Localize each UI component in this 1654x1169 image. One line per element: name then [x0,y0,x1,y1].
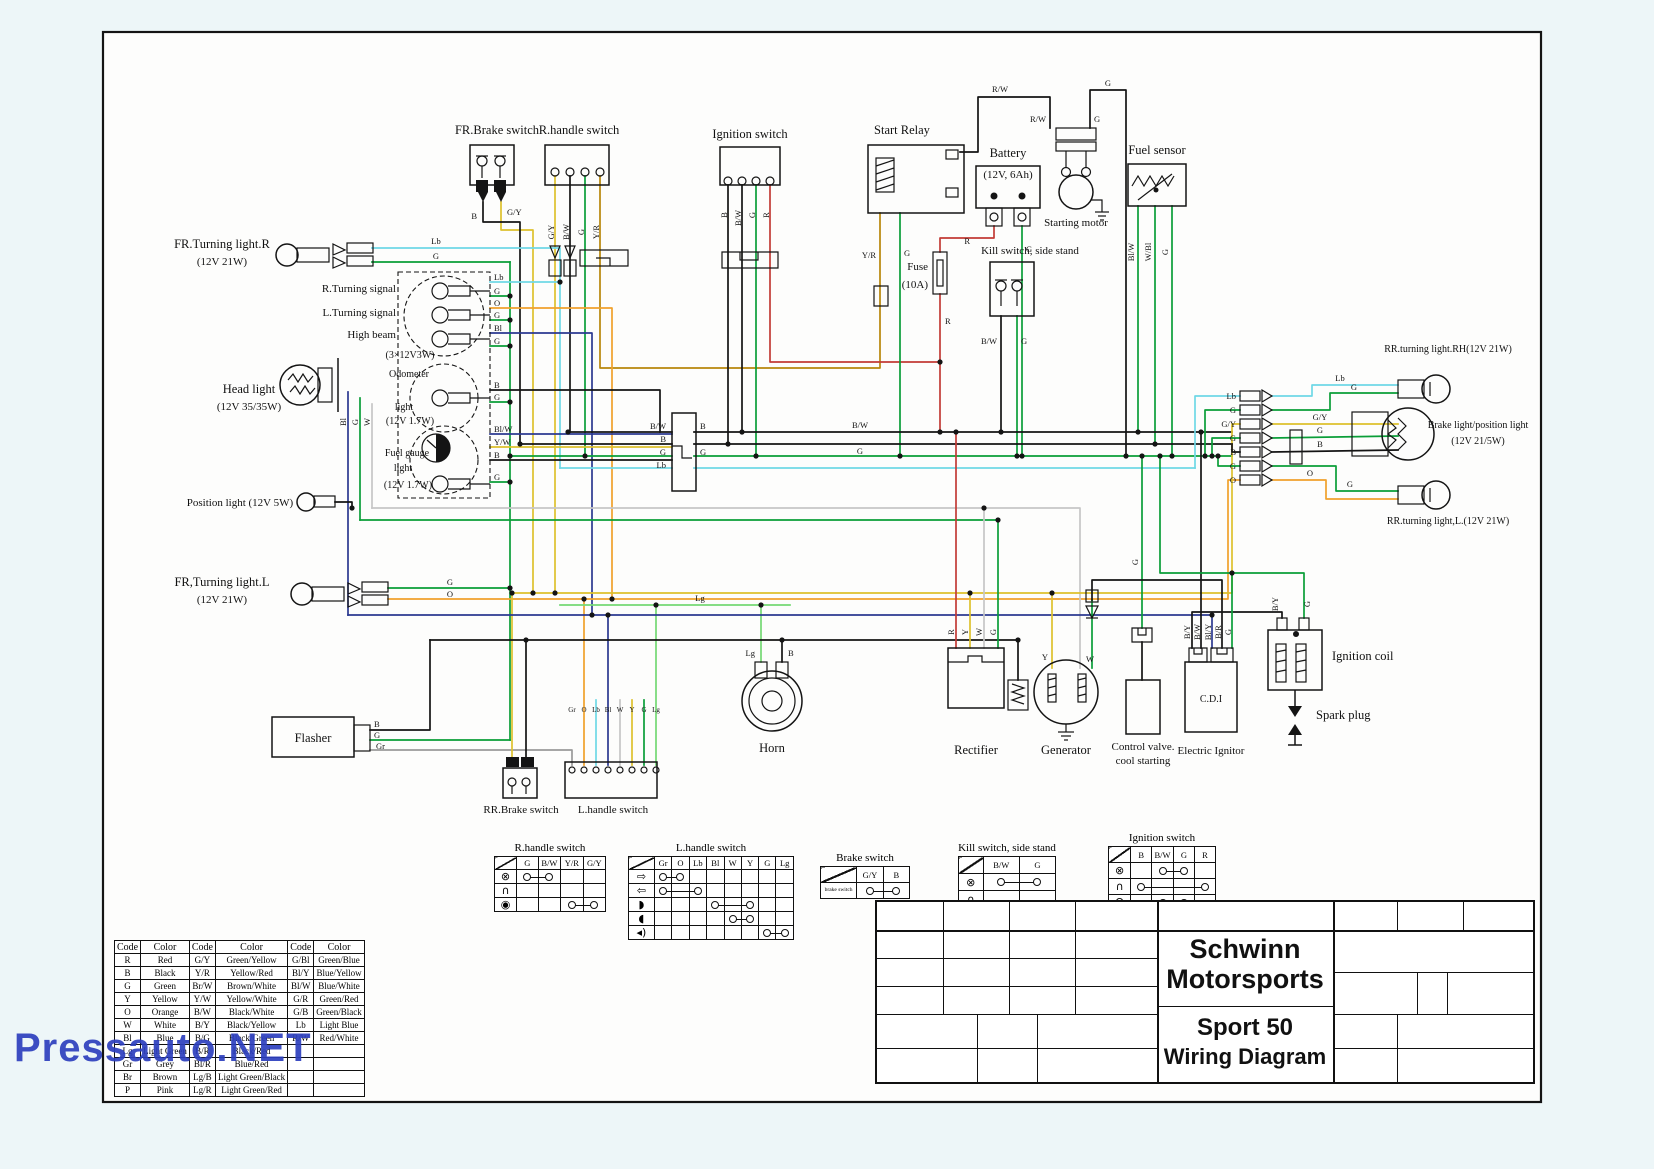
title-block-line [977,1014,978,1082]
color-table-cell: Brown [141,1071,190,1084]
contact-cell [672,884,689,898]
wire-tag: G [1094,114,1100,124]
contact-cell [516,898,538,912]
switch-table-column: Bl [707,857,724,870]
wire-tag: B/W [733,210,743,226]
contact-cell [672,926,689,940]
contact-cell [689,912,706,926]
cluster-rating: (3×12V3W) [386,350,435,361]
document-title: Wiring Diagram [1157,1044,1333,1070]
title-block-line [1417,972,1418,1014]
contact-cell [538,898,561,912]
switch-table-row: ◉ [495,898,606,912]
contact-cell [654,926,671,940]
l-turn-signal-label: L.Turning signal [322,307,396,319]
wire-tag: O [1230,475,1236,485]
wire-tag: G [1230,461,1236,471]
r-handle-switch-table-mount: R.handle switchGB/WY/RG/Y⊗∩◉ [494,842,606,912]
contact-cell [689,884,706,898]
color-table-cell: Bl/W [288,980,314,993]
switch-table-row: brake switch [821,883,910,899]
model-name: Sport 50 [1157,1014,1333,1042]
brake-switch-table-title: Brake switch [820,852,910,864]
switch-table-column: G [516,857,538,870]
battery-rating: (12V, 6Ah) [983,169,1033,181]
color-table-cell [314,1058,364,1071]
contact-cell [583,870,605,884]
color-table-cell: Green/Blue [314,954,364,967]
spark-plug-label: Spark plug [1316,708,1371,722]
r-handle-switch-table: GB/WY/RG/Y⊗∩◉ [494,856,606,912]
contact-cell [1019,874,1055,891]
color-table-row: PPinkLg/RLight Green/Red [115,1084,365,1097]
wire-tag: B [700,421,706,431]
pin-label: G [641,706,646,714]
wire-tag: Lb [1227,391,1236,401]
horn-label: Horn [759,741,785,755]
battery-label: Battery [990,146,1028,160]
color-table-cell: G [115,980,141,993]
wire-tag: G [747,212,757,218]
color-table-cell [288,1084,314,1097]
contact-cell [857,883,884,899]
wire-tag: B/W [852,420,868,430]
wire-tag: Lg [695,593,705,603]
contact-cell [724,884,741,898]
switch-table-row: ◗ [629,898,794,912]
color-table-cell: Y/R [189,967,215,980]
color-table-row: BrBrownLg/BLight Green/Black [115,1071,365,1084]
contact-cell [1173,863,1194,879]
wire-tag: R [761,212,771,218]
contact-cell [1131,879,1152,895]
r-handle-switch-label: R.handle switch [539,123,620,137]
contact-cell [689,926,706,940]
color-table-cell [288,1071,314,1084]
wire-tag: G [1351,382,1357,392]
low-beam-icon: ◖ [629,912,655,926]
contact-cell [724,912,741,926]
kill-switch-table-mount: Kill switch, side standB/WG⊗∩ [958,842,1056,908]
wire-tag: G [1026,244,1032,254]
color-table-cell: Lg/R [189,1084,215,1097]
rr-turn-rh-label: RR.turning light.RH(12V 21W) [1384,344,1512,355]
wire-tag: B [719,212,729,218]
contact-cell [707,870,724,884]
contact-cell [672,870,689,884]
switch-table-row: ◖ [629,912,794,926]
contact-cell [654,884,671,898]
color-table-cell: Light Blue [314,1019,364,1032]
fuel-sensor-label: Fuel sensor [1128,143,1186,157]
wire-tag: G [494,336,500,346]
diagonal-corner [1109,847,1131,863]
wire-tag: B/R [1213,625,1223,639]
pin-label: Gr [568,706,576,714]
color-table-cell: Yellow/Red [215,967,287,980]
contact-cell [759,912,776,926]
color-table-cell: Red/White [314,1032,364,1045]
r-turn-signal-label: R.Turning signal [322,283,396,295]
wire-tag: W [1086,654,1094,664]
contact-cell [1194,863,1215,879]
switch-table-row: ⇦ [629,884,794,898]
ignition-coil-label: Ignition coil [1332,649,1394,663]
switch-table-column: Lb [689,857,706,870]
title-block-line [1463,902,1464,930]
wire-tag: Gr [376,741,385,751]
title-block-line [877,986,1157,987]
pin-label: Y [629,706,634,714]
wire-tag: G [494,310,500,320]
contact-cell [516,884,538,898]
contact-cell [672,898,689,912]
generator-label: Generator [1041,743,1092,757]
color-table-cell: Br/W [189,980,215,993]
color-table-cell [314,1071,364,1084]
title-block-line [1157,1006,1335,1007]
color-table-cell: B [115,967,141,980]
color-table-header: Color [314,941,364,954]
brake-switch-label: brake switch [821,883,857,899]
color-table-cell: P [115,1084,141,1097]
wire-tag: Lg [746,648,756,658]
fuel-gauge-rating: (12V 1.7W) [384,480,432,491]
brand-name-line2: Motorsports [1157,964,1333,995]
color-table-cell: Blue/Yellow [314,967,364,980]
diagonal-corner [495,857,517,870]
fr-brake-switch-label: FR.Brake switch [455,123,540,137]
wire-tag: Lb [1335,373,1344,383]
wire-tag: G [857,446,863,456]
contact-cell [724,870,741,884]
fr-turn-l-rating: (12V 21W) [197,594,248,606]
rr-brake-switch-label: RR.Brake switch [483,804,559,816]
ignition-switch-table-title: Ignition switch [1108,832,1216,844]
r-handle-switch-table-title: R.handle switch [494,842,606,854]
wire-tag: Lb [494,272,503,282]
brand-name-line1: Schwinn [1157,934,1333,965]
switch-table-column: Y/R [561,857,583,870]
wire-tag: B/W [650,421,666,431]
color-table-row: BBlackY/RYellow/RedBl/YBlue/Yellow [115,967,365,980]
wire-tag: Bl/W [1126,243,1136,261]
switch-table-column: G/Y [583,857,605,870]
wire-tag: G [1302,601,1312,607]
wiring-diagram-page: FR.Brake switch R.handle switch Ignition… [0,0,1654,1169]
wire-tag: B [471,211,477,221]
color-table-cell: Green/Yellow [215,954,287,967]
contact-cell [654,870,671,884]
high-beam-icon: ◗ [629,898,655,912]
wire-tag: R [964,236,970,246]
contact-cell [561,870,583,884]
wire-tag: B/W [561,224,571,240]
l-handle-switch-table: GrOLbBlWYGLg⇨⇦◗◖◂) [628,856,794,940]
switch-table-column: G [1173,847,1194,863]
color-table-cell: Green [141,980,190,993]
color-table-cell: Yellow/White [215,993,287,1006]
pin-label: Lg [652,706,660,714]
color-table-cell: Blue/White [314,980,364,993]
color-table-cell: Orange [141,1006,190,1019]
color-table-cell: Br [115,1071,141,1084]
wire-tag: W/Bl [1143,242,1153,261]
watermark: Pressauto.NET [14,1026,312,1071]
switch-table-column: B [883,867,909,883]
wire-tag: W [362,418,372,426]
wire-tag: Lb [431,236,440,246]
wire-tag: Y [1042,652,1048,662]
color-table-cell: Y [115,993,141,1006]
rectifier-label: Rectifier [954,743,999,757]
wire-tag: R/W [1030,114,1046,124]
electric-ignitor-label: Electric Ignitor [1178,745,1245,757]
contact-cell [759,898,776,912]
color-table-header: Code [288,941,314,954]
contact-cell [654,912,671,926]
contact-cell [561,884,583,898]
wire-tag: G/Y [1313,412,1328,422]
l-handle-switch-table-mount: L.handle switchGrOLbBlWYGLg⇨⇦◗◖◂) [628,842,794,940]
contact-cell [1131,863,1152,879]
title-block-line [1335,972,1533,973]
wire-tag: G [1223,629,1233,635]
contact-cell [724,926,741,940]
wire-tag: G [433,251,439,261]
on-icon: ⊗ [1109,863,1131,879]
color-table-row: GGreenBr/WBrown/WhiteBl/WBlue/White [115,980,365,993]
title-block: Schwinn Motorsports Sport 50 Wiring Diag… [875,900,1535,1084]
cdi-label: C.D.I [1200,694,1222,705]
color-table-cell: G/Y [189,954,215,967]
contact-cell [776,884,794,898]
switch-table-column: W [724,857,741,870]
contact-cell [776,898,794,912]
fuse-label: Fuse [907,261,928,273]
contact-cell [883,883,909,899]
wire-tag: Y/R [591,225,601,240]
wire-tag: Bl/Y [1203,624,1213,641]
start-icon: ⊗ [495,870,517,884]
color-table-cell: Black/White [215,1006,287,1019]
title-block-line [1037,1014,1038,1082]
wire-tag: B/W [981,336,997,346]
wire-tag: G [576,229,586,235]
switch-table-row: ∩ [1109,879,1216,895]
title-block-line [1335,1048,1533,1049]
switch-table-column: R [1194,847,1215,863]
contact-cell [672,912,689,926]
wire-tag: G [494,286,500,296]
wire-tag: G [660,447,666,457]
wire-tag: G [447,577,453,587]
title-block-line [1447,972,1448,1014]
title-block-line [877,1048,1157,1049]
diagonal-corner [629,857,655,870]
color-table-cell: Pink [141,1084,190,1097]
fuse-rating: (10A) [902,279,929,291]
switch-table-column: Y [741,857,758,870]
contact-cell [776,870,794,884]
wire-tag: G [1130,559,1140,565]
contact-cell [983,874,1019,891]
off-icon: ∩ [495,884,517,898]
color-table-cell: Light Green/Red [215,1084,287,1097]
contact-cell [689,898,706,912]
wire-tag: G/Y [546,225,556,240]
color-table-row: OOrangeB/WBlack/WhiteG/BGreen/Black [115,1006,365,1019]
brake-switch-table-mount: Brake switchG/YBbrake switch [820,852,910,899]
wire-tag: G [1317,425,1323,435]
contact-cell [741,870,758,884]
color-table-cell: Bl/Y [288,967,314,980]
color-table-cell [314,1084,364,1097]
wire-tag: B/W [1192,624,1202,640]
color-table-cell: Yellow [141,993,190,1006]
wire-tag: G [988,629,998,635]
contact-cell [538,884,561,898]
head-light-label: Head light [223,382,276,396]
wire-tag: G/Y [1221,419,1236,429]
wire-tag: Bl [338,417,348,426]
wire-tag: G [350,419,360,425]
switch-table-column: G [759,857,776,870]
switch-table-row: ∩ [495,884,606,898]
wire-tag: G [1105,78,1111,88]
title-block-line [1335,1014,1533,1015]
l-handle-switch-table-title: L.handle switch [628,842,794,854]
left-turn-icon: ⇦ [629,884,655,898]
position-light-label: Position light (12V 5W) [187,497,294,509]
switch-table-row: ⊗ [495,870,606,884]
off-icon: ∩ [1109,879,1131,895]
control-valve-label-2: cool starting [1116,755,1171,767]
wire-tag: Bl/W [494,424,512,434]
contact-cell [516,870,538,884]
contact-cell [776,912,794,926]
wire-tag: R [946,629,956,635]
wire-tag: Y/R [862,250,877,260]
brake-light-label-2: (12V 21/5W) [1451,436,1504,447]
switch-table-row: ◂) [629,926,794,940]
wire-tag: B [660,434,666,444]
rr-turn-l-label: RR.turning light,L.(12V 21W) [1387,516,1509,527]
color-table-cell: R [115,954,141,967]
contact-cell [538,870,561,884]
contact-cell [707,898,724,912]
contact-cell [759,926,776,940]
fr-turn-l-label: FR,Turning light.L [174,575,269,589]
odometer-rating: (12V 1.7W) [386,416,434,427]
color-table-cell: Green/Red [314,993,364,1006]
contact-cell [707,912,724,926]
pin-label: O [581,706,586,714]
color-table-cell: Black [141,967,190,980]
color-table-cell: B/W [189,1006,215,1019]
contact-cell [741,884,758,898]
control-valve-label-1: Control valve. [1112,741,1175,753]
contact-cell [1194,879,1215,895]
title-block-line [1397,902,1398,930]
wire-tag: B [494,380,500,390]
wire-tag: G [494,472,500,482]
color-table-cell: O [115,1006,141,1019]
wire-tag: R [945,316,951,326]
contact-cell [583,884,605,898]
color-table-cell: Green/Black [314,1006,364,1019]
color-table-header: Color [215,941,287,954]
fuel-gauge-label-2: light [394,463,413,474]
wire-tag: W [974,628,984,636]
wire-tag: G [1160,249,1170,255]
wire-tag: Y [960,629,970,635]
color-table-header: Color [141,941,190,954]
wire-tag: O [494,298,500,308]
title-block-line [877,1014,1157,1015]
color-table-row: YYellowY/WYellow/WhiteG/RGreen/Red [115,993,365,1006]
switch-table-row: ⇨ [629,870,794,884]
switch-table-column: B/W [538,857,561,870]
wire-tag: R/W [992,84,1008,94]
wire-tag: B [788,648,794,658]
color-table-cell: Lg/B [189,1071,215,1084]
contact-cell [1173,879,1194,895]
color-table-row: RRedG/YGreen/YellowG/BlGreen/Blue [115,954,365,967]
right-turn-icon: ⇨ [629,870,655,884]
contact-cell [741,912,758,926]
title-block-line [877,930,1533,932]
switch-table-column: Lg [776,857,794,870]
switch-table-column: B [1131,847,1152,863]
contact-cell [707,884,724,898]
contact-cell [583,898,605,912]
kill-switch-table-title: Kill switch, side stand [958,842,1056,854]
switch-table-column: G [1019,857,1055,874]
fuel-gauge-label-1: Fuel gauge [385,448,430,459]
starter-button-icon: ◉ [495,898,517,912]
switch-table-row: ⊗ [959,874,1056,891]
wire-tag: G [494,392,500,402]
high-beam-label: High beam [347,329,396,341]
fr-turn-r-rating: (12V 21W) [197,256,248,268]
run-icon: ⊗ [959,874,984,891]
title-block-line [1397,1014,1398,1082]
switch-table-column: G/Y [857,867,884,883]
color-code-table: CodeColorCodeColorCodeColorRRedG/YGreen/… [114,940,365,1097]
wire-color-code-table: CodeColorCodeColorCodeColorRRedG/YGreen/… [114,940,365,1097]
wire-tag: O [1307,468,1313,478]
color-table-cell: Brown/White [215,980,287,993]
switch-table-column: B/W [983,857,1019,874]
contact-cell [776,926,794,940]
wire-tag: B [374,719,380,729]
contact-cell [741,926,758,940]
switch-table-column: B/W [1152,847,1174,863]
wire-tag: B/Y [1182,625,1192,639]
wire-tag: Bl [494,323,503,333]
wire-tag: G [374,730,380,740]
flasher-label: Flasher [295,731,333,745]
l-handle-switch-label: L.handle switch [578,804,649,816]
wire-tag: G [1230,433,1236,443]
wire-tag: G [1347,479,1353,489]
contact-cell [689,870,706,884]
diagonal-corner [821,867,857,883]
color-table-cell: G/B [288,1006,314,1019]
color-table-header: Code [115,941,141,954]
color-table-cell: Red [141,954,190,967]
